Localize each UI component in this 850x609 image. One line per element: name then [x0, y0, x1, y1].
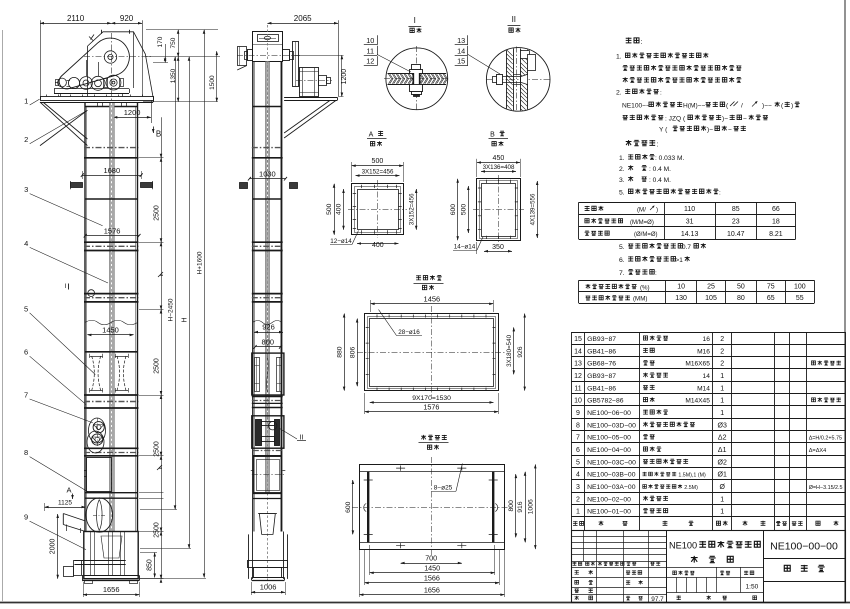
svg-text::: :	[719, 190, 721, 197]
svg-text:1:50: 1:50	[745, 584, 758, 591]
svg-text:4: 4	[576, 472, 580, 479]
svg-text:M16X65: M16X65	[685, 361, 710, 368]
svg-text:2500: 2500	[153, 441, 160, 457]
svg-text:450: 450	[493, 155, 505, 162]
svg-text:8.21: 8.21	[769, 231, 783, 238]
svg-text:7.: 7.	[619, 270, 625, 277]
svg-text:5: 5	[576, 459, 580, 466]
svg-text:10: 10	[366, 36, 374, 45]
svg-text:1.: 1.	[619, 155, 625, 162]
svg-text:4: 4	[24, 239, 28, 248]
svg-text:NE100−06−00: NE100−06−00	[587, 410, 631, 417]
svg-text:)−: )−	[722, 116, 728, 123]
svg-text:H(M)−−: H(M)−−	[683, 103, 705, 110]
svg-text:I: I	[414, 16, 416, 25]
svg-text:5: 5	[24, 304, 28, 313]
svg-text:1: 1	[24, 97, 28, 106]
svg-text:GB93−87: GB93−87	[587, 373, 616, 380]
svg-text:1576: 1576	[423, 402, 439, 411]
svg-text:110: 110	[684, 206, 695, 213]
svg-text:800: 800	[262, 337, 275, 346]
svg-text:12: 12	[366, 57, 374, 66]
svg-text:31: 31	[686, 219, 694, 226]
svg-text:Δ1: Δ1	[718, 447, 727, 454]
svg-text:14: 14	[703, 373, 711, 380]
svg-text:2: 2	[24, 135, 28, 144]
svg-text:3.: 3.	[619, 177, 625, 184]
svg-text:11: 11	[367, 46, 375, 55]
svg-text:2.5M): 2.5M)	[684, 485, 698, 491]
svg-text:1: 1	[720, 509, 724, 516]
svg-text:0.7: 0.7	[682, 244, 691, 251]
svg-text:15: 15	[574, 336, 582, 343]
svg-text:NE100−03A−00: NE100−03A−00	[587, 484, 636, 491]
svg-text:600: 600	[345, 501, 352, 513]
svg-text:(Ø/M=Ø): (Ø/M=Ø)	[634, 232, 658, 238]
svg-text:6.: 6.	[619, 257, 625, 264]
svg-text:Δ=ΔX4: Δ=ΔX4	[809, 448, 827, 454]
svg-text:800: 800	[508, 500, 515, 512]
svg-text:500: 500	[372, 158, 384, 165]
svg-text:2500: 2500	[153, 205, 160, 221]
svg-text:50: 50	[737, 284, 745, 291]
svg-text:I: I	[65, 283, 67, 290]
svg-text:GB68−76: GB68−76	[587, 361, 616, 368]
svg-text:18: 18	[772, 219, 780, 226]
svg-text:NE100−00−00: NE100−00−00	[770, 541, 838, 553]
svg-text:Ø=H−3.15/2.5: Ø=H−3.15/2.5	[809, 485, 843, 491]
svg-text:Ø3: Ø3	[718, 422, 727, 429]
svg-text:2: 2	[720, 336, 724, 343]
svg-text:500: 500	[461, 204, 468, 216]
svg-text:1.: 1.	[616, 54, 622, 61]
svg-text:/: /	[741, 103, 743, 110]
svg-text:4X139=556: 4X139=556	[529, 193, 536, 225]
svg-text:11: 11	[574, 385, 581, 392]
svg-text:920: 920	[120, 14, 134, 23]
svg-text:14: 14	[574, 348, 582, 355]
svg-text:M14: M14	[697, 385, 710, 392]
svg-text:926: 926	[517, 346, 524, 358]
svg-text:NE100−03D−00: NE100−03D−00	[587, 422, 636, 429]
svg-text:NE100−02−00: NE100−02−00	[587, 496, 631, 503]
svg-text:9X170=1530: 9X170=1530	[412, 395, 451, 402]
svg-text:M16: M16	[697, 348, 710, 355]
svg-text:A: A	[66, 486, 71, 495]
svg-text:66: 66	[772, 206, 780, 213]
svg-text:9: 9	[576, 410, 580, 417]
svg-text:13: 13	[574, 361, 582, 368]
svg-text:105: 105	[705, 295, 717, 302]
svg-text:880: 880	[336, 346, 343, 358]
svg-text:Ø1: Ø1	[718, 472, 727, 479]
svg-text:(M/: (M/	[637, 207, 646, 214]
svg-text:600: 600	[450, 204, 457, 216]
svg-text:Δ=H/0.2+5.75: Δ=H/0.2+5.75	[809, 436, 842, 442]
svg-text:H−2450: H−2450	[167, 298, 174, 321]
svg-text:1350: 1350	[170, 68, 177, 83]
svg-text:(%): (%)	[640, 284, 650, 291]
svg-text:A: A	[369, 132, 374, 139]
svg-text:8: 8	[576, 422, 580, 429]
svg-text:14−ø14: 14−ø14	[454, 244, 476, 251]
svg-text:1: 1	[720, 398, 724, 405]
svg-text:3: 3	[24, 185, 28, 194]
svg-text:28−ø16: 28−ø16	[398, 329, 420, 336]
svg-text:15: 15	[457, 57, 465, 66]
svg-text:>1: >1	[676, 257, 684, 264]
svg-text:9: 9	[24, 513, 28, 522]
svg-text:85: 85	[732, 206, 740, 213]
svg-text:100: 100	[794, 284, 806, 291]
svg-text:−: −	[743, 116, 747, 123]
svg-text:400: 400	[336, 203, 343, 215]
svg-text:2.: 2.	[616, 90, 622, 97]
svg-text:2065: 2065	[294, 14, 312, 23]
svg-text:10: 10	[574, 398, 582, 405]
svg-text:12−ø14: 12−ø14	[330, 238, 352, 245]
svg-text:NE100−−: NE100−−	[622, 103, 650, 110]
svg-text:65: 65	[767, 295, 775, 302]
svg-text:10: 10	[677, 284, 685, 291]
svg-text:NE100−03C−00: NE100−03C−00	[587, 459, 636, 466]
svg-text:2500: 2500	[153, 358, 160, 374]
svg-text:2: 2	[576, 496, 580, 503]
svg-text:B: B	[490, 132, 495, 139]
svg-text:H: H	[181, 317, 188, 322]
svg-text:GB93−87: GB93−87	[587, 336, 616, 343]
svg-text:1450: 1450	[102, 326, 119, 335]
svg-text:14: 14	[457, 46, 465, 55]
svg-text:350: 350	[492, 244, 504, 251]
svg-text:: 0.033 M.: : 0.033 M.	[655, 155, 684, 162]
svg-text:B: B	[156, 130, 161, 139]
svg-text:25: 25	[707, 284, 715, 291]
svg-text:1: 1	[720, 496, 724, 503]
svg-text:1656: 1656	[424, 585, 440, 594]
svg-text:1576: 1576	[104, 227, 121, 236]
svg-text:130: 130	[675, 295, 687, 302]
svg-text:GB41−86: GB41−86	[587, 348, 616, 355]
svg-text:80: 80	[737, 295, 745, 302]
svg-text:)−: )−	[707, 127, 713, 134]
svg-text:1500: 1500	[209, 75, 216, 90]
svg-text:916: 916	[517, 501, 524, 513]
svg-text:: JZQ (: : JZQ (	[665, 116, 686, 123]
svg-text:6: 6	[24, 348, 28, 357]
svg-text:23: 23	[732, 219, 740, 226]
svg-text:1456: 1456	[424, 294, 441, 303]
svg-text:55: 55	[796, 295, 804, 302]
svg-text:1030: 1030	[259, 170, 276, 179]
svg-text:1006: 1006	[260, 583, 277, 592]
svg-text:H+1600: H+1600	[196, 251, 203, 274]
svg-text:2.: 2.	[619, 166, 625, 173]
svg-text:750: 750	[170, 37, 177, 48]
svg-text:97.7: 97.7	[651, 596, 664, 603]
svg-text:1: 1	[720, 410, 724, 417]
svg-text:1680: 1680	[103, 166, 120, 175]
svg-text:7: 7	[24, 391, 28, 400]
svg-text:1125: 1125	[58, 500, 72, 507]
svg-text:400: 400	[372, 242, 384, 249]
svg-text:1450: 1450	[424, 563, 440, 572]
svg-text:): )	[791, 103, 793, 110]
svg-text:3X180=540: 3X180=540	[506, 334, 513, 366]
svg-text:13: 13	[457, 36, 465, 45]
svg-text:): )	[656, 207, 658, 214]
svg-text::: :	[657, 142, 659, 149]
svg-text:3X152=456: 3X152=456	[362, 168, 394, 175]
svg-text:1.5M),1 (M): 1.5M),1 (M)	[678, 473, 706, 479]
svg-text:8−ø25: 8−ø25	[434, 485, 453, 492]
svg-text:Ø2: Ø2	[718, 459, 727, 466]
svg-text:7: 7	[576, 435, 580, 442]
svg-text:8: 8	[24, 448, 28, 457]
svg-text:170: 170	[157, 36, 164, 47]
svg-text:3X152=456: 3X152=456	[408, 193, 415, 225]
svg-text:806: 806	[349, 347, 356, 359]
svg-text:1200: 1200	[341, 69, 348, 85]
svg-text:GB5782−86: GB5782−86	[587, 398, 624, 405]
svg-text::: :	[660, 90, 662, 97]
svg-text:II: II	[512, 15, 516, 24]
svg-text:NE100−04−00: NE100−04−00	[587, 447, 631, 454]
svg-text:)−−: )−−	[762, 103, 772, 110]
svg-text:NE100−05−00: NE100−05−00	[587, 435, 631, 442]
svg-text:16: 16	[703, 336, 711, 343]
svg-text:1566: 1566	[424, 574, 440, 583]
svg-text:2: 2	[720, 361, 724, 368]
svg-text::: :	[655, 270, 657, 277]
svg-text:75: 75	[767, 284, 775, 291]
svg-text:10.47: 10.47	[727, 231, 745, 238]
svg-text:1: 1	[720, 373, 724, 380]
svg-text:500: 500	[326, 203, 333, 215]
svg-text:5.: 5.	[619, 244, 625, 251]
svg-text:(M/M=Ø): (M/M=Ø)	[630, 220, 654, 226]
svg-text:NE100−01−00: NE100−01−00	[587, 509, 631, 516]
svg-text:2: 2	[720, 348, 724, 355]
svg-text:: 0.4 M.: : 0.4 M.	[649, 177, 671, 184]
svg-text:GB41−86: GB41−86	[587, 385, 616, 392]
svg-text::: :	[641, 39, 643, 46]
svg-text:1: 1	[720, 385, 724, 392]
svg-text:12: 12	[574, 373, 582, 380]
svg-text:2110: 2110	[67, 14, 85, 23]
svg-text:−: −	[728, 127, 732, 134]
svg-text:3X136=408: 3X136=408	[483, 164, 515, 171]
svg-text:926: 926	[262, 323, 275, 332]
svg-text:2500: 2500	[153, 522, 160, 538]
svg-text:NE100: NE100	[669, 541, 697, 551]
svg-text:5.: 5.	[619, 190, 625, 197]
svg-text:700: 700	[425, 554, 437, 563]
svg-text:: 0.4 M.: : 0.4 M.	[649, 166, 671, 173]
svg-text:1656: 1656	[103, 585, 120, 594]
svg-text:1: 1	[576, 509, 580, 516]
svg-text:Y (: Y (	[659, 127, 668, 134]
svg-text:2000: 2000	[50, 539, 57, 555]
svg-text:Δ2: Δ2	[718, 435, 727, 442]
svg-text:NE100−03B−00: NE100−03B−00	[587, 472, 636, 479]
svg-text:3: 3	[576, 484, 580, 491]
svg-text:Ø: Ø	[719, 484, 725, 491]
svg-text:6: 6	[576, 447, 580, 454]
svg-text:1006: 1006	[528, 499, 535, 514]
svg-text:(MM): (MM)	[633, 296, 647, 303]
svg-text:14.13: 14.13	[681, 231, 699, 238]
svg-text:M14X45: M14X45	[685, 398, 710, 405]
svg-text:850: 850	[147, 559, 154, 571]
